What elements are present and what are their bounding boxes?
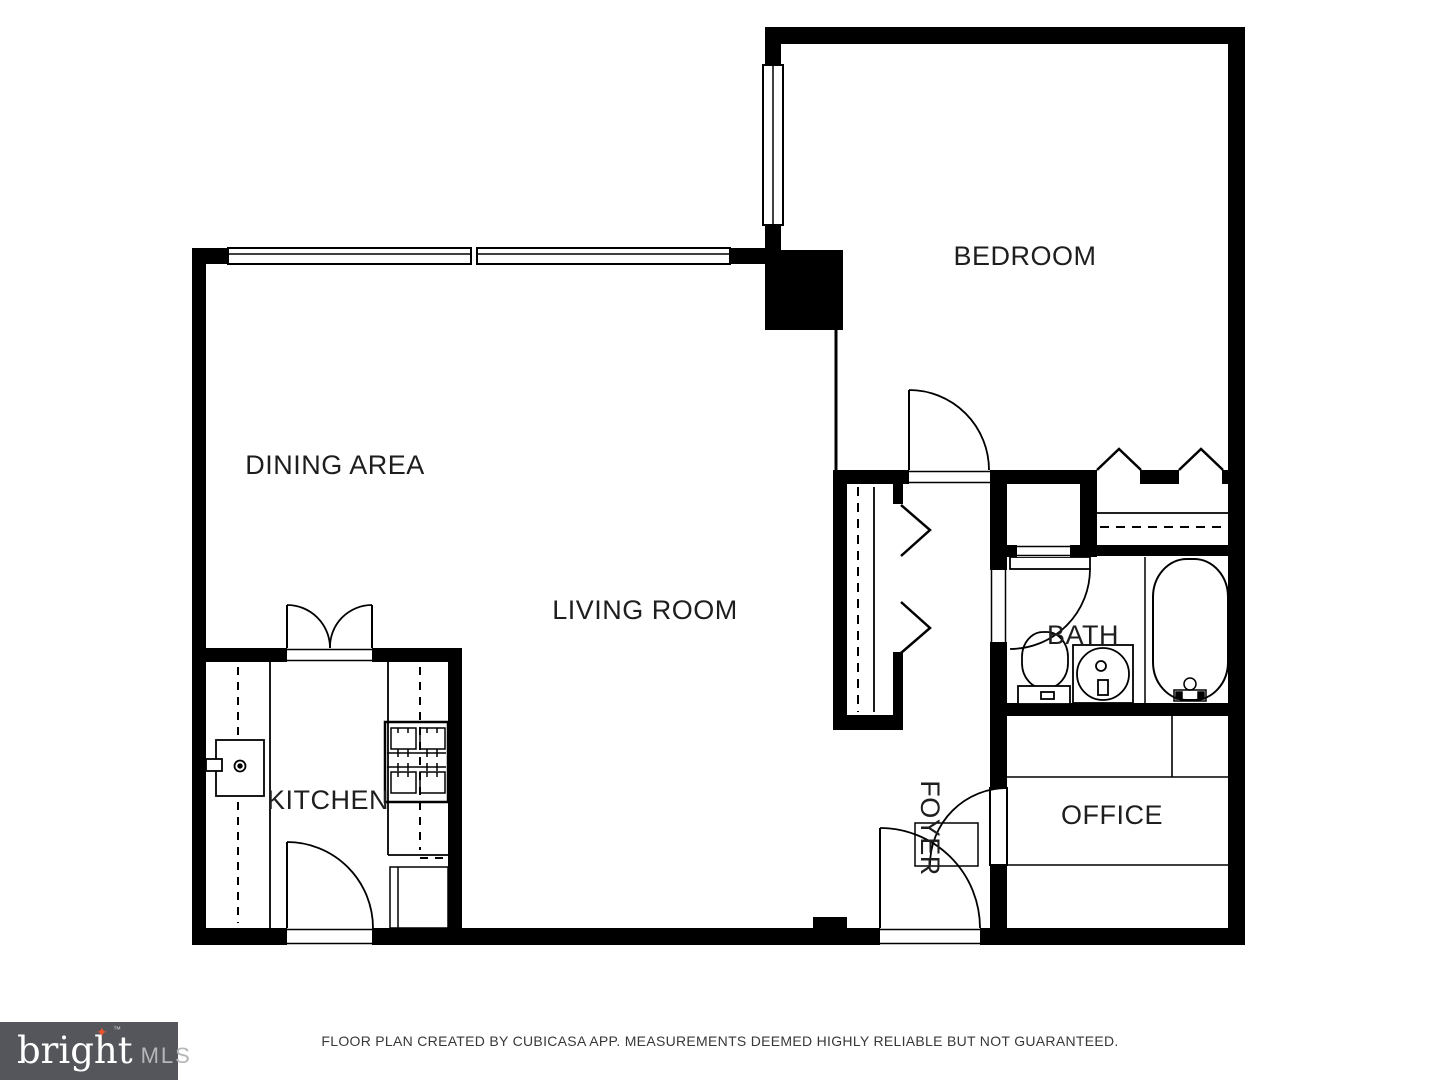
bathtub [1145,557,1228,703]
kitchen-double-door [287,605,372,662]
living-window-right [477,248,730,264]
kitchen-counter-right [385,662,450,928]
label-kitchen: KITCHEN [267,785,389,815]
floor-plan: DINING AREA LIVING ROOM KITCHEN BEDROOM … [0,0,1440,1080]
stove [385,722,448,802]
bedroom-door [909,390,990,484]
windows [228,65,783,264]
kitchen-counter-left [206,662,270,928]
logo-suffix-text: MLS [141,1027,192,1085]
office-furniture [1007,716,1228,865]
sink-vanity [1073,645,1133,703]
closet-opening [1017,545,1070,557]
bright-mls-logo: bright MLS ✦ ™ [0,1022,178,1080]
kitchen-door [287,842,373,945]
bedroom-closet-bifold-doors [1097,449,1223,470]
bedroom-closet-shelf [1097,513,1228,527]
hall-closet-bifold-doors [901,505,930,653]
tub-faucet [1174,678,1206,701]
trademark-symbol: ™ [113,1026,121,1034]
label-bedroom: BEDROOM [953,241,1096,271]
hall-closet-shelf [858,487,874,712]
label-dining-area: DINING AREA [245,450,425,480]
label-living-room: LIVING ROOM [552,595,738,625]
bedroom-window [763,65,783,225]
living-window-left [228,248,471,264]
star-icon: ✦ [96,1025,108,1039]
footer-disclaimer: FLOOR PLAN CREATED BY CUBICASA APP. MEAS… [0,1033,1440,1049]
label-office: OFFICE [1061,800,1163,830]
kitchen-sink [206,740,264,796]
label-bath: BATH [1047,620,1119,650]
label-foyer: FOYER [915,780,945,876]
